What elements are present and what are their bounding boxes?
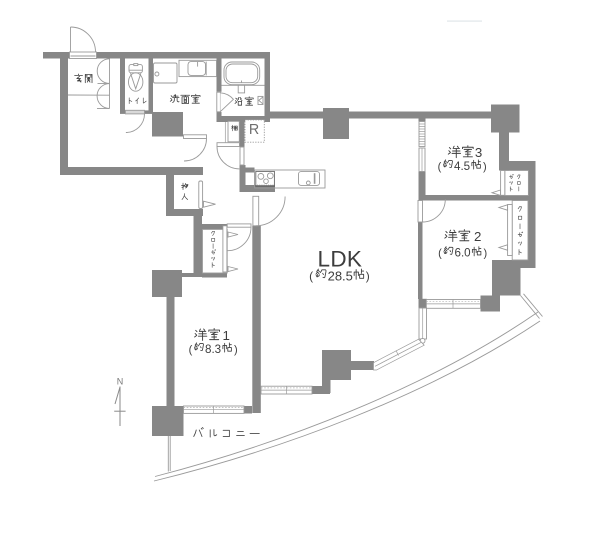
svg-text:1: 1 [223,328,230,343]
svg-text:8.3: 8.3 [205,343,221,356]
svg-text:(: ( [309,269,313,283]
svg-text:): ) [484,248,488,260]
svg-text:N: N [117,377,124,387]
svg-text:): ) [483,161,487,173]
svg-text:6.0: 6.0 [455,247,471,260]
svg-text:3: 3 [475,145,482,160]
svg-text:(: ( [438,161,442,173]
svg-text:2: 2 [474,229,481,244]
svg-text:R: R [249,122,259,138]
svg-text:): ) [234,344,238,356]
svg-text:28.5: 28.5 [328,268,353,283]
svg-text:(: ( [189,344,193,356]
svg-text:4.5: 4.5 [454,160,470,173]
svg-text:): ) [366,269,370,283]
svg-text:(: ( [438,248,442,260]
